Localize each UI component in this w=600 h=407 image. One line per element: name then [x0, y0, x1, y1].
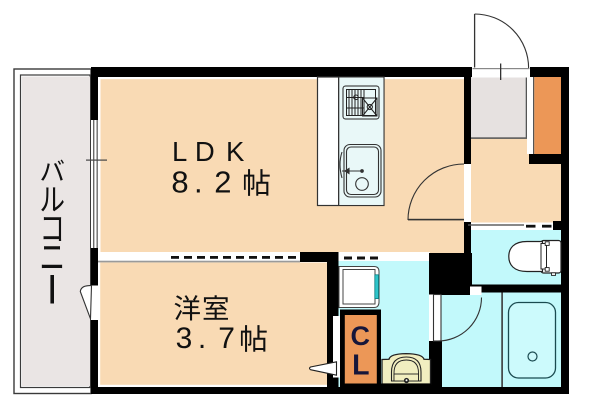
svg-text:2: 2 — [214, 165, 231, 200]
svg-text:3: 3 — [176, 322, 193, 355]
svg-text:.: . — [198, 322, 206, 355]
svg-text:C: C — [351, 321, 371, 351]
svg-text:L: L — [352, 350, 369, 382]
svg-text:D: D — [195, 136, 215, 167]
svg-text:7: 7 — [218, 322, 235, 355]
svg-text:.: . — [194, 165, 203, 200]
svg-text:K: K — [226, 136, 245, 167]
svg-text:L: L — [172, 136, 187, 167]
svg-text:8: 8 — [171, 165, 188, 200]
